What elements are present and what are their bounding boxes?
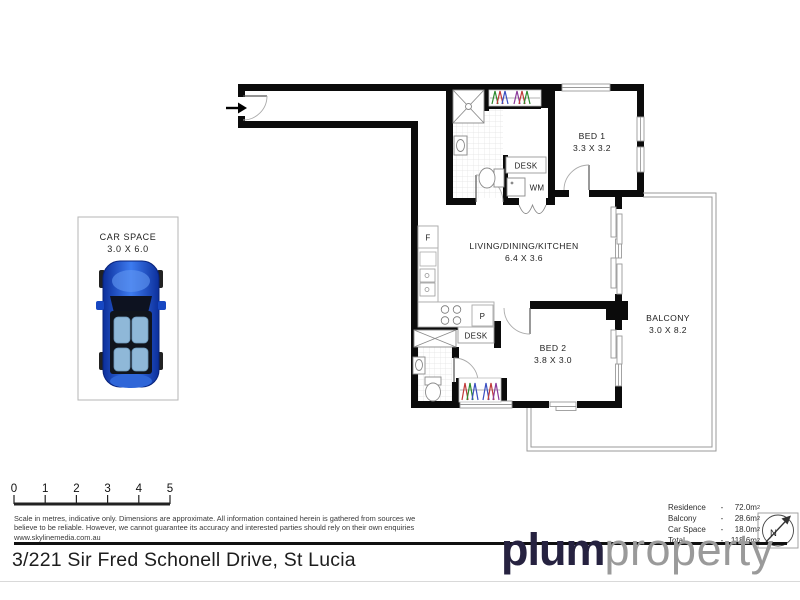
desk1-label: DESK bbox=[515, 162, 538, 171]
area-value: 72.0m bbox=[728, 503, 757, 514]
wall-segment bbox=[452, 347, 459, 358]
wall-segment bbox=[606, 301, 628, 320]
wall-segment bbox=[446, 198, 476, 205]
living-dims: 6.4 X 3.6 bbox=[505, 253, 543, 263]
car-windshield bbox=[110, 296, 152, 313]
area-dash: - bbox=[716, 503, 728, 514]
window bbox=[562, 84, 610, 91]
door-arc bbox=[504, 308, 530, 334]
car-icon bbox=[96, 261, 166, 388]
wall-segment bbox=[615, 386, 622, 408]
bottom-divider-line bbox=[0, 581, 800, 582]
disclaimer-line: Scale in metres, indicative only. Dimens… bbox=[14, 514, 454, 523]
sliding-door bbox=[611, 330, 622, 364]
car-mirror bbox=[96, 301, 104, 310]
disclaimer-line: believe to be reliable. However, we cann… bbox=[14, 523, 454, 532]
area-row: Residence - 72.0m 2 bbox=[668, 503, 760, 514]
wall-segment bbox=[615, 294, 622, 301]
shower-icon bbox=[414, 330, 456, 347]
wall-segment bbox=[589, 190, 644, 197]
logo-property-text: property bbox=[605, 524, 774, 575]
scale-tick: 1 bbox=[42, 483, 48, 495]
wall-segment bbox=[512, 401, 549, 408]
balcony-dims: 3.0 X 8.2 bbox=[649, 325, 687, 335]
logo-plum-text: plum bbox=[501, 524, 605, 575]
wall-segment bbox=[546, 198, 555, 205]
wall-segment bbox=[615, 320, 622, 330]
wm-label: WM bbox=[530, 184, 545, 193]
sliding-door bbox=[611, 207, 622, 244]
bed1-wardrobe-icon bbox=[489, 90, 541, 106]
pantry-label: P bbox=[480, 312, 486, 321]
sink-icon bbox=[413, 357, 425, 374]
scale-tick: 4 bbox=[136, 483, 143, 495]
bed2-label: BED 2 bbox=[540, 343, 567, 353]
wall-segment bbox=[541, 90, 548, 108]
scale-tick: 0 bbox=[11, 483, 17, 495]
laundry-bifold-doors bbox=[519, 205, 546, 214]
car-boot bbox=[110, 374, 152, 388]
living-label: LIVING/DINING/KITCHEN bbox=[469, 241, 578, 251]
window bbox=[637, 147, 644, 172]
car-space-dims: 3.0 X 6.0 bbox=[107, 244, 148, 254]
car-mirror bbox=[158, 301, 166, 310]
toilet-icon bbox=[425, 377, 441, 401]
sink-icon bbox=[454, 136, 467, 155]
wall-segment bbox=[446, 84, 453, 205]
floorplan-page: BED 1 3.3 X 3.2 LIVING/DINING/KITCHEN 6.… bbox=[0, 0, 800, 600]
disclaimer-line: www.skylinemedia.com.au bbox=[14, 533, 454, 542]
bifold-door bbox=[519, 205, 546, 214]
oven-icon bbox=[420, 252, 436, 266]
plum-property-logo: plumproperty bbox=[501, 524, 774, 576]
washing-machine-icon bbox=[507, 178, 525, 196]
wall-segment bbox=[548, 84, 555, 205]
car-space-label: CAR SPACE bbox=[100, 232, 157, 242]
window bbox=[637, 117, 644, 141]
shower-icon bbox=[453, 90, 484, 123]
wall-segment bbox=[452, 382, 459, 403]
scale-bar: 0 1 2 3 4 5 bbox=[11, 483, 173, 504]
desk2-label: DESK bbox=[465, 332, 488, 341]
balcony-label: BALCONY bbox=[646, 313, 690, 323]
bed2-door bbox=[504, 308, 530, 334]
scale-tick: 5 bbox=[167, 483, 173, 495]
wall-segment bbox=[637, 141, 644, 147]
bed1-label: BED 1 bbox=[579, 131, 606, 141]
bed1-door bbox=[564, 165, 589, 190]
fridge-label: F bbox=[425, 234, 430, 243]
scale-bar-numbers: 0 1 2 3 4 5 bbox=[11, 483, 173, 495]
area-label: Residence bbox=[668, 503, 716, 514]
bed2-dims: 3.8 X 3.0 bbox=[534, 355, 572, 365]
toilet-icon bbox=[479, 168, 504, 188]
sliding-door bbox=[550, 402, 576, 411]
area-unit-sup: 2 bbox=[757, 503, 760, 514]
wall-segment bbox=[530, 301, 612, 309]
disclaimer-text: Scale in metres, indicative only. Dimens… bbox=[14, 514, 454, 542]
wall-segment bbox=[238, 121, 418, 128]
car-hood-shine bbox=[112, 270, 150, 292]
door-arc bbox=[564, 165, 589, 190]
bed1-dims: 3.3 X 3.2 bbox=[573, 143, 611, 153]
wall-segment bbox=[494, 321, 501, 348]
car-space: CAR SPACE 3.0 X 6.0 bbox=[78, 217, 178, 400]
wall-segment bbox=[503, 198, 519, 205]
property-address: 3/221 Sir Fred Schonell Drive, St Lucia bbox=[12, 549, 356, 572]
sliding-door bbox=[611, 258, 622, 294]
floor-plan: BED 1 3.3 X 3.2 LIVING/DINING/KITCHEN 6.… bbox=[226, 84, 716, 451]
scale-tick: 2 bbox=[73, 483, 79, 495]
scale-tick: 3 bbox=[104, 483, 110, 495]
bed2-wardrobe-icon bbox=[459, 378, 501, 402]
entry-arrow-icon bbox=[226, 103, 247, 114]
wall-segment bbox=[637, 84, 644, 117]
window bbox=[616, 364, 622, 386]
